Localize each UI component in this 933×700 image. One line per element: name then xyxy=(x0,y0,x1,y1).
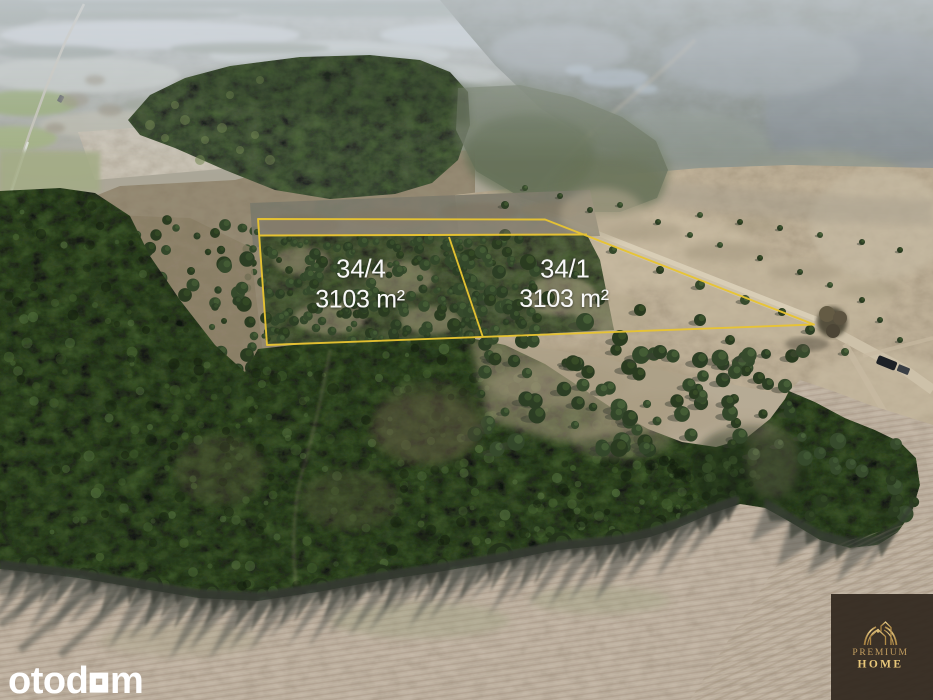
svg-text:m: m xyxy=(110,660,144,700)
svg-text:34/1: 34/1 xyxy=(540,256,590,284)
svg-text:3103 m²: 3103 m² xyxy=(315,286,405,314)
svg-text:PREMIUM: PREMIUM xyxy=(852,648,908,658)
svg-text:34/4: 34/4 xyxy=(336,256,386,284)
svg-text:HOME: HOME xyxy=(857,659,903,671)
svg-text:3103 m²: 3103 m² xyxy=(519,285,609,313)
svg-text:otod: otod xyxy=(8,660,88,700)
